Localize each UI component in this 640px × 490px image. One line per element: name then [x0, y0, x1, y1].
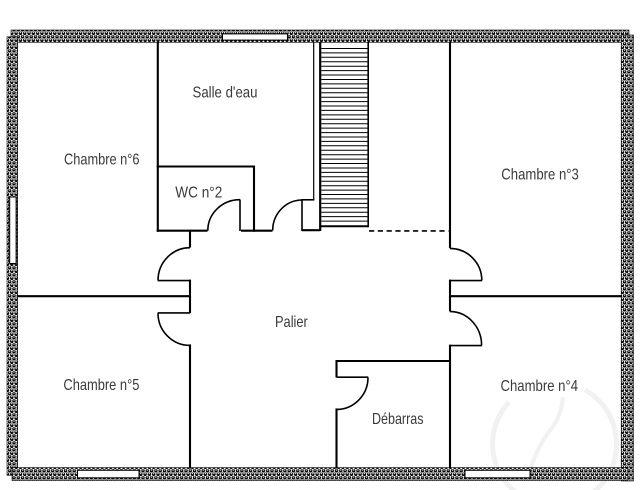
svg-text:Débarras: Débarras [372, 411, 424, 428]
svg-text:Chambre n°6: Chambre n°6 [64, 151, 140, 168]
svg-text:WC n°2: WC n°2 [175, 184, 222, 201]
svg-text:Chambre n°5: Chambre n°5 [63, 377, 139, 394]
svg-text:Palier: Palier [275, 314, 308, 331]
svg-text:Chambre n°3: Chambre n°3 [501, 167, 579, 184]
svg-text:Salle d'eau: Salle d'eau [193, 85, 258, 102]
svg-text:Chambre n°4: Chambre n°4 [501, 378, 579, 395]
